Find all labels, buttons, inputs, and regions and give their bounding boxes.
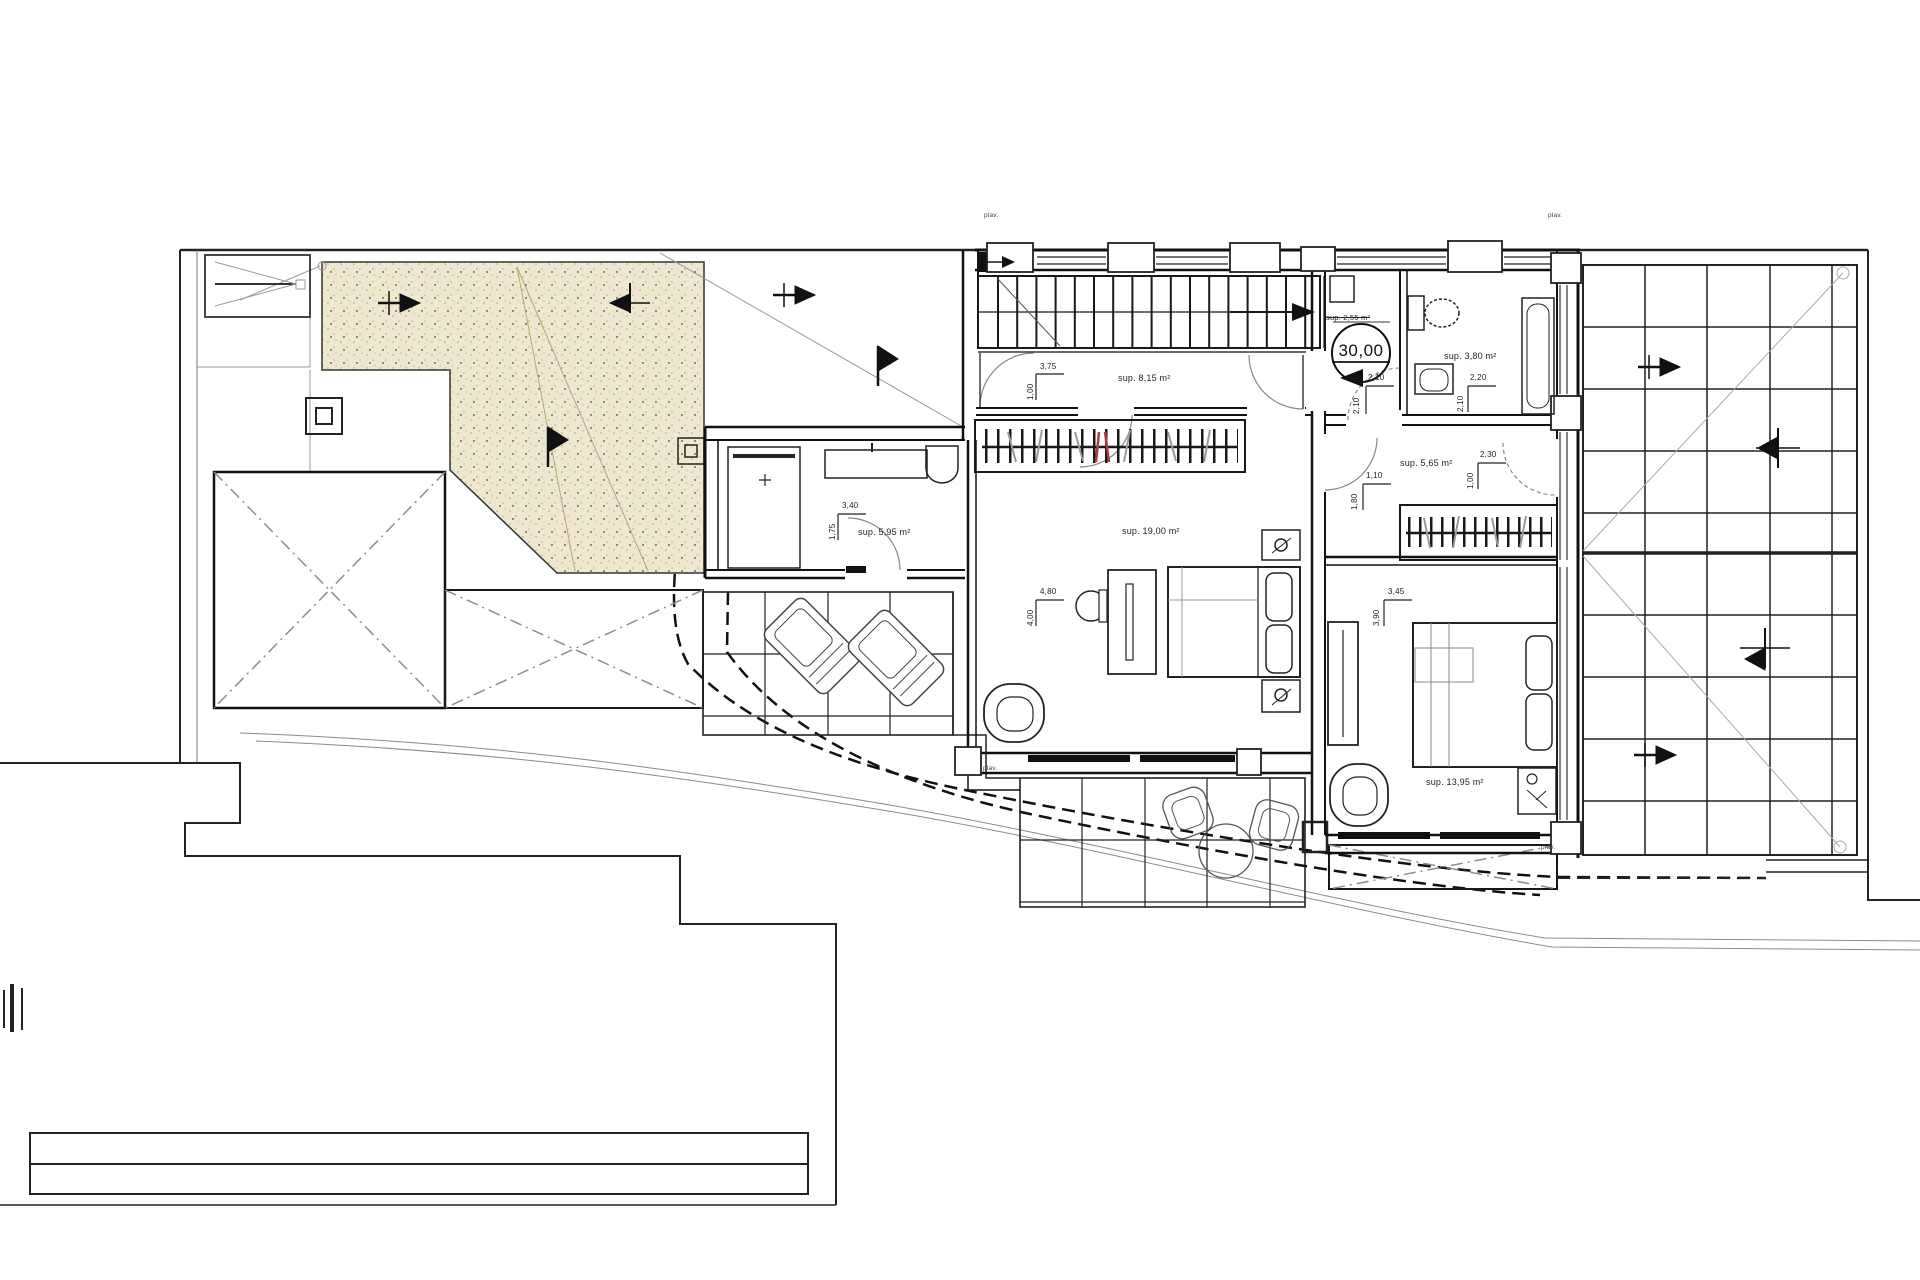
dim-master-width: 4,80 xyxy=(1040,587,1056,596)
dim-master-height: 4,00 xyxy=(1026,610,1035,626)
skylight-box xyxy=(205,255,310,317)
terrain-contours xyxy=(240,733,1920,950)
area-label-hall: sup. 8,15 m² xyxy=(1118,373,1170,383)
desk-master xyxy=(1076,570,1156,674)
sand-terrace xyxy=(322,262,704,573)
armchair-master xyxy=(984,684,1044,742)
slope-arrow-icon xyxy=(1634,743,1676,767)
slope-arrow-icon xyxy=(1740,628,1790,670)
dim-bath-left-width: 3,40 xyxy=(842,501,858,510)
dim-bedroom-right-height: 3,90 xyxy=(1372,610,1381,626)
site-boundary xyxy=(0,250,1920,1205)
dim-dressing-width2: 1,10 xyxy=(1366,471,1382,480)
dim-bedroom-right-width: 3,45 xyxy=(1388,587,1404,596)
armchair-right xyxy=(1330,764,1388,826)
lounge-chairs xyxy=(761,595,947,709)
floor-plan-sheet: sup. 8,15 m² sup. 19,00 m² sup. 13,95 m²… xyxy=(0,0,1920,1280)
dim-wc-width: 2,10 xyxy=(1368,373,1384,382)
wardrobe-dressing xyxy=(1400,505,1557,560)
area-label-dressing: sup. 5,65 m² xyxy=(1400,458,1452,468)
dim-bath-left-height: 1,75 xyxy=(828,524,837,540)
area-label-bath-left: sup. 5,95 m² xyxy=(858,527,910,537)
area-label-wc-struck: sup. 2,55 m² xyxy=(1326,313,1370,322)
level-marker-value: 30,00 xyxy=(1332,341,1390,361)
window-note: plav. xyxy=(1548,212,1562,219)
bed-right xyxy=(1413,623,1557,767)
wardrobe-hall xyxy=(975,420,1245,472)
bed-master xyxy=(1168,567,1300,677)
window-note: plav. xyxy=(983,765,997,772)
area-label-bedroom-right: sup. 13,95 m² xyxy=(1426,777,1484,787)
dim-bath-top-height: 2,10 xyxy=(1456,396,1465,412)
dim-dressing-height: 1,00 xyxy=(1466,473,1475,489)
nightstand-right xyxy=(1518,768,1556,814)
dim-dressing-width: 2,30 xyxy=(1480,450,1496,459)
dim-hall-width: 3,75 xyxy=(1040,362,1056,371)
window-note: plav. xyxy=(984,212,998,219)
dresser-right xyxy=(1328,622,1358,745)
window-note: plav. xyxy=(1541,844,1555,851)
slope-arrow-icon xyxy=(773,283,815,307)
area-label-master: sup. 19,00 m² xyxy=(1122,526,1180,536)
slope-arrow-icon xyxy=(1756,428,1800,468)
dim-wc-height: 2,10 xyxy=(1352,398,1361,414)
tile-grid-right xyxy=(1557,265,1868,878)
area-label-bath-top: sup. 3,80 m² xyxy=(1444,351,1496,361)
dim-hall-height: 1,00 xyxy=(1026,384,1035,400)
dim-dressing-height2: 1,80 xyxy=(1350,494,1359,510)
floor-plan-canvas xyxy=(0,0,1920,1280)
dim-bath-top-width: 2,20 xyxy=(1470,373,1486,382)
